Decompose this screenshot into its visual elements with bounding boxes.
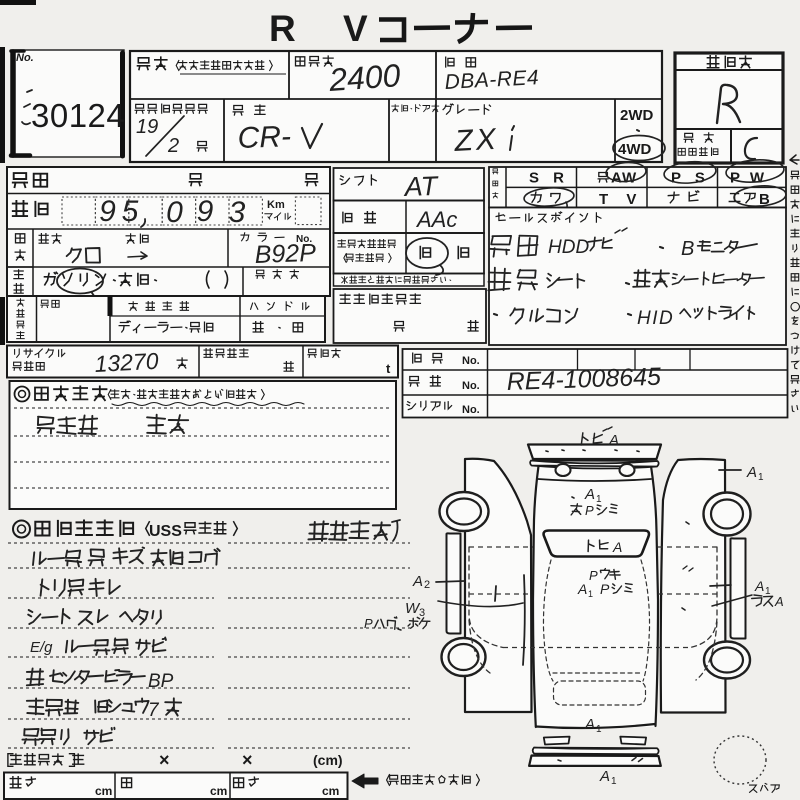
svg-text:A: A [599,768,610,785]
svg-text:V: V [343,8,368,49]
svg-text:cm: cm [322,784,339,798]
svg-text:P S: P S [671,170,710,187]
svg-text:30124: 30124 [31,97,125,134]
svg-text:9: 9 [197,195,214,228]
svg-text:4WD: 4WD [618,141,652,158]
svg-text:CR-: CR- [237,120,291,155]
svg-text:RE4-1008645: RE4-1008645 [506,363,661,396]
svg-text:T V: T V [599,191,643,208]
svg-text:1: 1 [611,776,617,787]
svg-text:A: A [608,432,619,449]
svg-text:19: 19 [136,116,158,138]
svg-text:P: P [364,616,373,631]
svg-text:13270: 13270 [94,348,159,377]
svg-text:0: 0 [166,196,183,229]
svg-text:B92P: B92P [254,239,316,269]
svg-text:2400: 2400 [327,57,402,98]
svg-text:7: 7 [148,700,160,721]
svg-text:×: × [159,750,170,770]
svg-text:1: 1 [596,494,602,505]
svg-text:R: R [269,8,296,49]
svg-text:A: A [612,539,622,555]
svg-text:A: A [774,594,784,609]
svg-text:No.: No. [462,380,480,392]
svg-text:E/g: E/g [30,639,53,656]
svg-text:A: A [584,716,595,733]
svg-text:AW: AW [611,170,637,187]
svg-text:P: P [585,503,594,518]
svg-text:9: 9 [99,195,116,228]
svg-text:P: P [600,581,610,597]
svg-text:A: A [754,578,764,594]
svg-text:USS: USS [149,523,182,540]
svg-text:Km: Km [267,199,285,211]
svg-text:3: 3 [419,607,425,619]
svg-text:cm: cm [95,784,112,798]
svg-text:No.: No. [462,355,480,367]
svg-text:No.: No. [16,52,34,64]
svg-text:HDD: HDD [548,237,589,258]
svg-text:t: t [386,361,391,376]
svg-text:A: A [412,573,423,590]
svg-text:A: A [584,486,595,503]
svg-text:2: 2 [424,579,430,591]
svg-text:1: 1 [588,589,593,599]
svg-text:No.: No. [462,404,480,416]
svg-text:AAc: AAc [415,207,457,232]
svg-text:1: 1 [596,724,602,735]
svg-text:2: 2 [167,135,179,157]
svg-text:ZX: ZX [453,123,500,158]
svg-text:AT: AT [402,171,440,202]
svg-text:(cm): (cm) [313,752,343,768]
svg-text:P W: P W [730,170,767,187]
svg-text:3: 3 [229,196,246,229]
svg-text:1: 1 [758,472,764,483]
svg-text:2WD: 2WD [620,107,654,124]
svg-text:1: 1 [765,586,771,597]
svg-text:cm: cm [210,784,227,798]
svg-text:BP: BP [148,671,174,692]
svg-text:HID: HID [637,308,674,329]
svg-text:5: 5 [122,195,139,228]
svg-text:B: B [681,238,694,260]
svg-text:S R: S R [529,170,569,187]
svg-text:A: A [577,581,587,597]
svg-text:A: A [746,464,757,481]
svg-text:×: × [242,750,253,770]
svg-text:P: P [589,568,598,583]
